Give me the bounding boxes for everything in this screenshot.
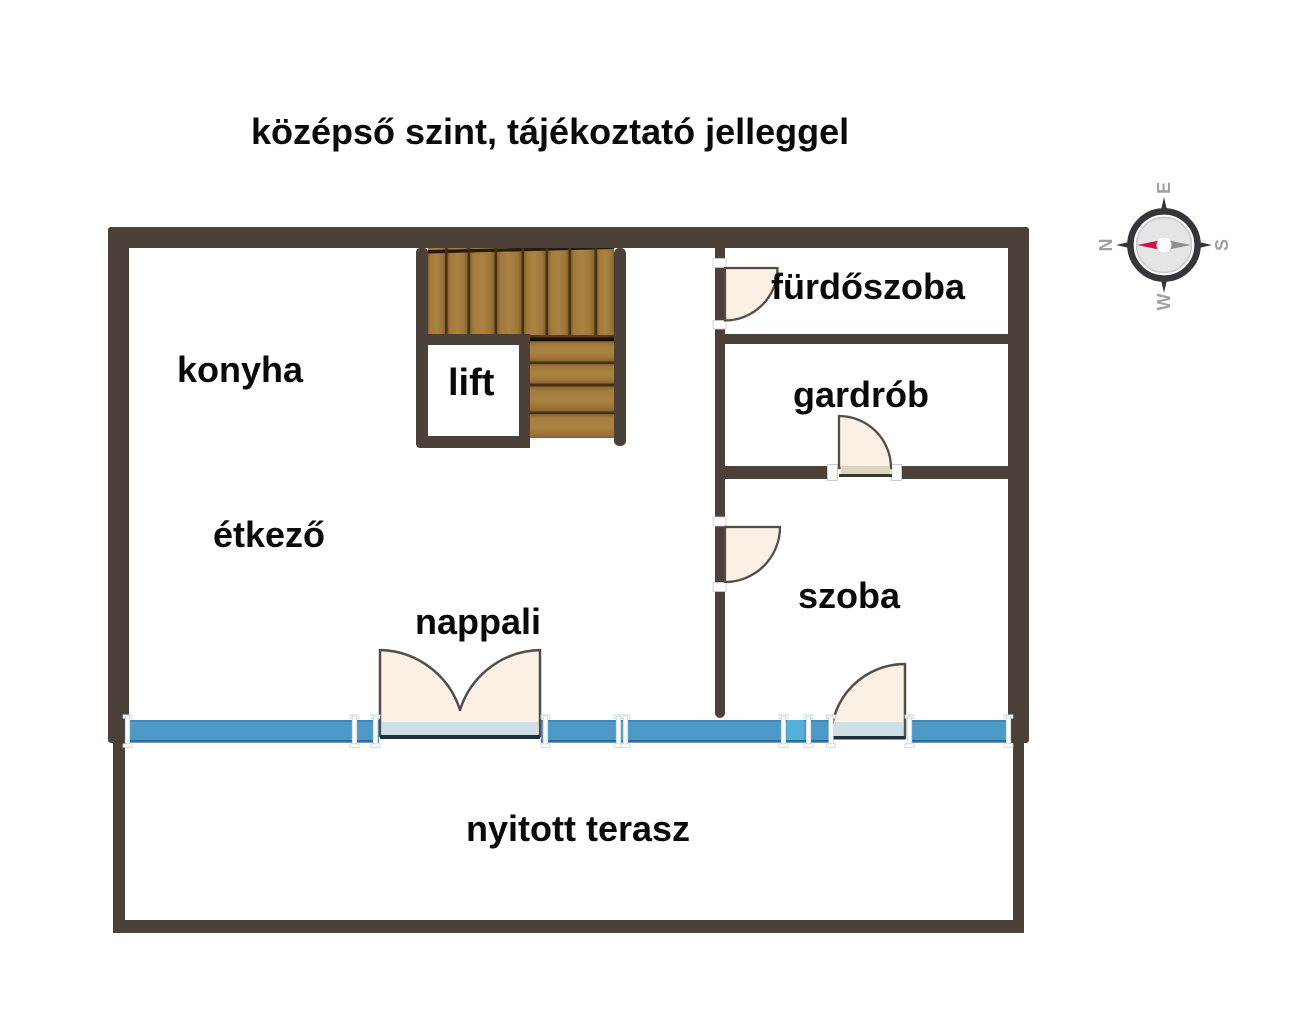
svg-text:konyha: konyha xyxy=(177,349,304,390)
svg-text:fürdőszoba: fürdőszoba xyxy=(771,266,966,307)
svg-text:gardrób: gardrób xyxy=(793,374,929,415)
svg-text:lift: lift xyxy=(448,362,495,404)
svg-text:W: W xyxy=(1154,294,1174,311)
svg-text:középső szint, tájékoztató jel: középső szint, tájékoztató jelleggel xyxy=(251,111,849,152)
svg-text:nyitott terasz: nyitott terasz xyxy=(466,808,690,849)
svg-text:N: N xyxy=(1096,239,1116,252)
svg-text:nappali: nappali xyxy=(415,601,541,642)
svg-text:E: E xyxy=(1154,182,1174,194)
svg-text:étkező: étkező xyxy=(213,514,325,555)
svg-text:szoba: szoba xyxy=(798,575,901,616)
svg-text:S: S xyxy=(1212,239,1232,251)
